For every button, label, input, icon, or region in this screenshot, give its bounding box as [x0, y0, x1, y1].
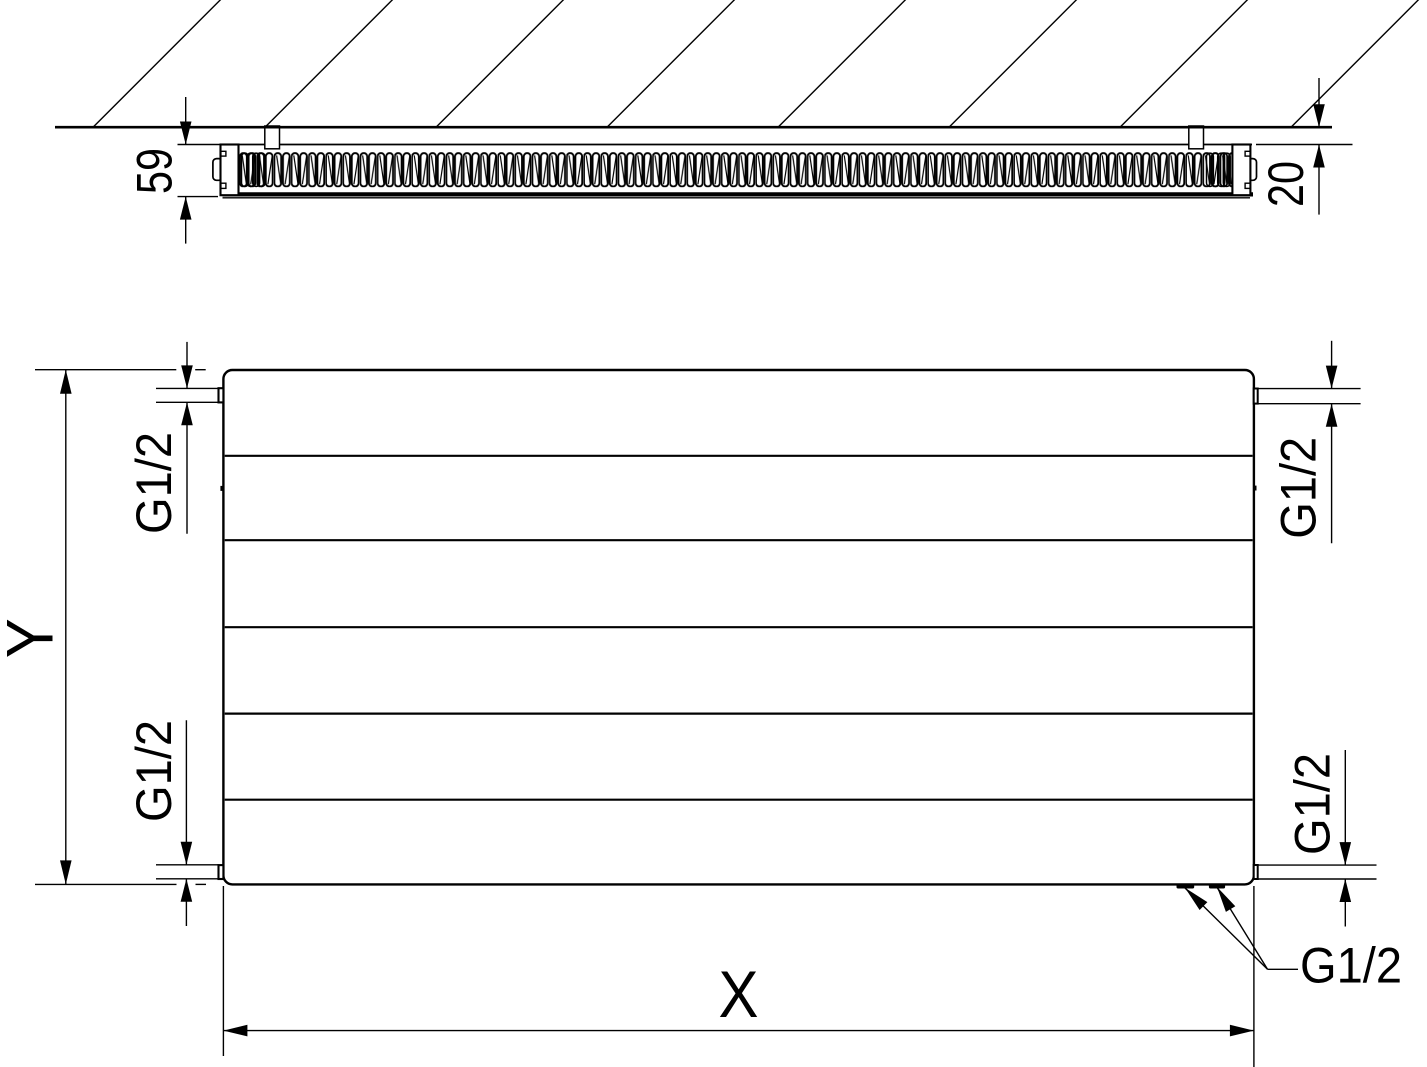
svg-text:59: 59	[127, 148, 183, 194]
svg-text:20: 20	[1258, 161, 1314, 207]
svg-text:G1/2: G1/2	[1271, 437, 1327, 539]
svg-text:X: X	[719, 957, 759, 1031]
svg-text:G1/2: G1/2	[126, 720, 182, 822]
svg-text:G1/2: G1/2	[1284, 753, 1340, 855]
svg-text:G1/2: G1/2	[126, 432, 182, 534]
svg-text:G1/2: G1/2	[1300, 938, 1402, 994]
svg-text:Y: Y	[0, 618, 67, 658]
